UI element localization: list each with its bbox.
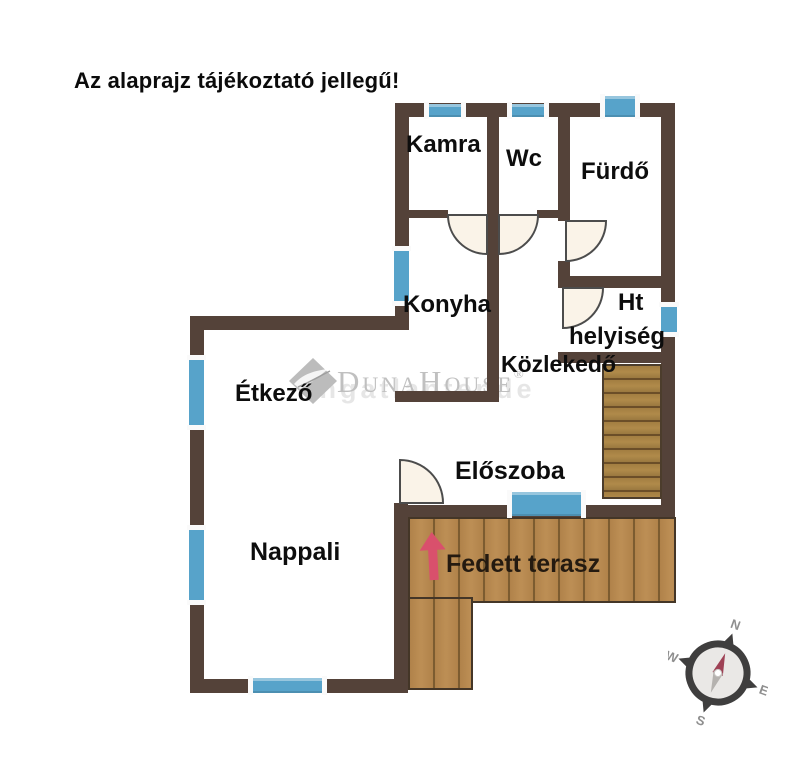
door-arc-entrance <box>400 460 443 503</box>
room-label-kozlekedo: Közlekedő <box>501 353 616 376</box>
room-label-kamra: Kamra <box>406 133 481 157</box>
room-label-ht-line1: Ht <box>618 291 643 315</box>
room-label-etkezo: Étkező <box>235 382 312 406</box>
compass-label-south: S <box>694 712 708 729</box>
room-label-fedett-terasz: Fedett terasz <box>446 552 600 577</box>
door-arc-ht <box>563 288 603 328</box>
window-nappali-left <box>189 527 204 603</box>
entrance-arrow-icon <box>418 531 449 582</box>
terrace-deck-narrow <box>408 597 473 690</box>
room-label-eloszoba: Előszoba <box>455 459 565 484</box>
door-arc-wc <box>499 215 538 254</box>
window-eloszoba <box>509 492 584 516</box>
room-label-nappali: Nappali <box>250 540 340 565</box>
compass-rose: N E S W <box>668 615 768 733</box>
wall-kamra-wc-divider <box>487 103 499 402</box>
window-wc <box>509 104 547 117</box>
wall-furdo-bottom <box>558 276 675 288</box>
room-label-ht-line2: helyiség <box>569 325 665 349</box>
wall-under-kamra <box>409 210 448 218</box>
wall-wc-furdo-divider <box>558 103 570 221</box>
wall-under-wc <box>537 210 558 218</box>
window-kamra <box>426 104 464 117</box>
room-label-wc: Wc <box>506 147 542 171</box>
floor-plan: Az alaprajz tájékoztató jellegű! ingatla… <box>0 0 808 768</box>
wall-konyha-bottom <box>395 391 498 402</box>
staircase <box>602 364 662 499</box>
disclaimer-title: Az alaprajz tájékoztató jellegű! <box>74 68 399 94</box>
wall-etkezo-top <box>190 316 409 330</box>
door-arc-kamra <box>448 215 487 254</box>
room-label-furdo: Fürdő <box>581 160 649 184</box>
window-etkezo <box>189 357 204 428</box>
room-label-konyha: Konyha <box>403 293 491 317</box>
window-nappali-bottom <box>250 678 325 693</box>
door-arc-furdo <box>566 221 606 261</box>
wall-nappali-right <box>394 503 408 693</box>
compass-label-east: E <box>757 682 768 699</box>
window-furdo <box>602 96 638 117</box>
compass-label-west: W <box>668 648 681 667</box>
compass-label-north: N <box>729 616 743 633</box>
